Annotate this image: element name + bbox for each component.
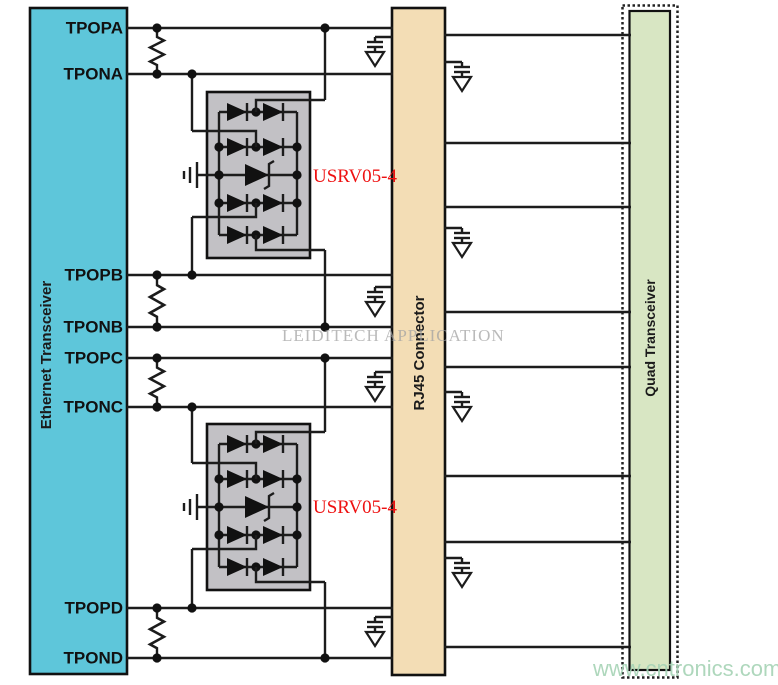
pin-label-tpond: TPOND — [64, 649, 124, 668]
pin-label-tponc: TPONC — [64, 398, 124, 417]
watermark-leiditech: LEIDITECH APPLICATION — [282, 326, 505, 345]
cap-ground-left-2 — [366, 287, 384, 316]
cap-ground-right-4 — [453, 558, 471, 587]
watermark-cntronics: www.cntronics.com — [592, 656, 778, 681]
cap-ground-right-3 — [453, 392, 471, 421]
cap-ground-left-4 — [366, 617, 384, 646]
pin-label-tpopb: TPOPB — [64, 266, 123, 285]
schematic-page: TPOPA TPONA TPOPB TPONB TPOPC TPONC TPOP… — [0, 0, 778, 685]
pin-label-tpopd: TPOPD — [64, 599, 123, 618]
termination-resistor-d — [150, 608, 164, 658]
cap-ground-left-3 — [366, 372, 384, 401]
termination-resistor-b — [150, 275, 164, 327]
pin-label-tpopa: TPOPA — [66, 19, 123, 38]
pin-label-tpona: TPONA — [64, 65, 124, 84]
quad-transceiver-title: Quad Transceiver — [642, 279, 658, 397]
tvs-array-1 — [184, 92, 325, 258]
cap-ground-left-1 — [366, 37, 384, 66]
termination-resistor-c — [150, 358, 164, 407]
tvs-array-2 — [184, 424, 325, 590]
pin-label-tpopc: TPOPC — [64, 349, 123, 368]
circuit-diagram: TPOPA TPONA TPOPB TPONB TPOPC TPONC TPOP… — [0, 0, 778, 685]
ethernet-transceiver-title: Ethernet Transceiver — [38, 281, 55, 430]
cap-ground-right-1 — [453, 62, 471, 91]
termination-resistor-a — [150, 28, 164, 74]
pin-label-tponb: TPONB — [64, 318, 124, 337]
rj45-connector-title: RJ45 Connector — [411, 295, 428, 410]
usrv05-4-label-1: USRV05-4 — [313, 166, 397, 187]
usrv05-4-label-2: USRV05-4 — [313, 497, 397, 518]
cap-ground-right-2 — [453, 228, 471, 257]
